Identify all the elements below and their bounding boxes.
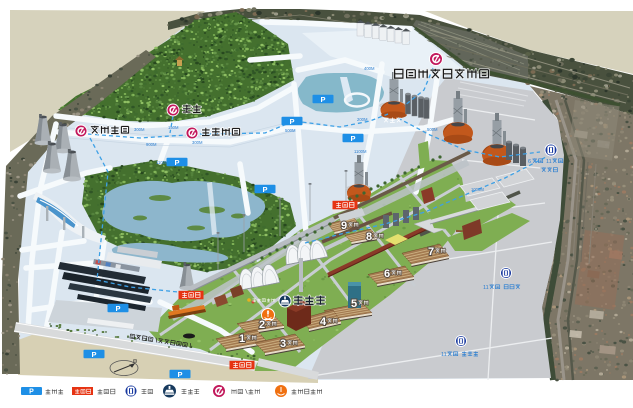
svg-text:2: 2 xyxy=(259,319,265,331)
svg-text:1000M: 1000M xyxy=(471,187,484,192)
svg-text:300M: 300M xyxy=(192,140,203,145)
svg-text:200M: 200M xyxy=(357,117,368,122)
svg-text:500M: 500M xyxy=(285,128,296,133)
svg-text:8: 8 xyxy=(366,231,372,243)
svg-text:150M: 150M xyxy=(168,125,179,130)
svg-text:9: 9 xyxy=(341,220,347,232)
svg-text:7: 7 xyxy=(428,246,434,258)
svg-text:5: 5 xyxy=(351,298,357,310)
svg-text:6: 6 xyxy=(384,268,390,280)
svg-text:P: P xyxy=(289,117,294,126)
svg-text:P: P xyxy=(177,370,182,379)
svg-text:P: P xyxy=(115,304,120,313)
svg-text:P: P xyxy=(320,95,325,104)
svg-text:P: P xyxy=(262,185,267,194)
svg-text:400M: 400M xyxy=(364,66,375,71)
svg-text:P: P xyxy=(91,350,96,359)
svg-text:4: 4 xyxy=(320,316,327,328)
svg-text:1: 1 xyxy=(239,333,245,345)
svg-text:11: 11 xyxy=(483,285,489,291)
svg-text:P: P xyxy=(350,134,355,143)
svg-text:11: 11 xyxy=(441,352,447,358)
svg-text:P: P xyxy=(29,389,34,396)
svg-text:300M: 300M xyxy=(134,127,145,132)
svg-text:500M: 500M xyxy=(427,127,438,132)
svg-text:900M: 900M xyxy=(146,142,157,147)
svg-text:6: 6 xyxy=(528,159,531,165)
svg-text:P: P xyxy=(174,158,179,167)
svg-text:3: 3 xyxy=(280,338,286,350)
svg-text:11: 11 xyxy=(546,159,552,165)
svg-text:1100M: 1100M xyxy=(354,149,367,154)
